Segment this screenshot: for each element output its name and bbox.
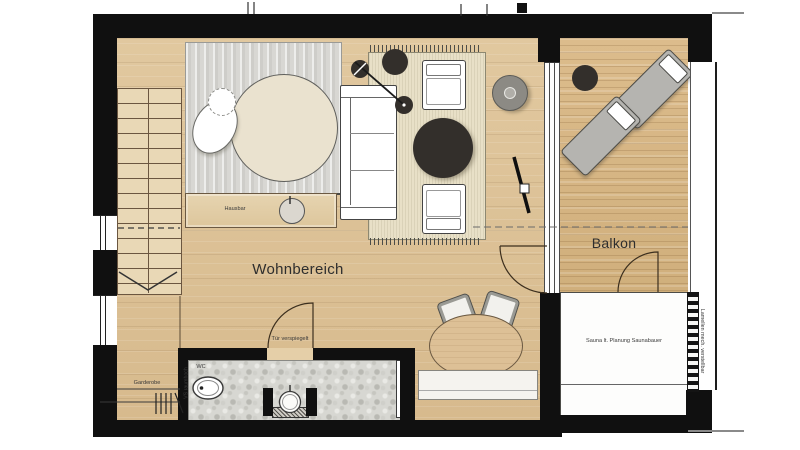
- sofa-armrest-bottom: [341, 207, 396, 219]
- wall-top: [93, 14, 712, 38]
- window-left-upper: [93, 215, 117, 252]
- wall-pier-balcony-top: [538, 36, 560, 62]
- side-table-dark: [382, 49, 408, 75]
- wall-bottom-sauna: [560, 415, 688, 433]
- sofa-cushion-line-1: [350, 133, 394, 134]
- sofa-backrest: [341, 97, 351, 205]
- vanity-pier-left: [263, 388, 273, 416]
- sideboard-line: [419, 390, 537, 391]
- top-wall-marker: [517, 3, 527, 13]
- label-mirrored-door: Tür verspiegelt: [271, 335, 309, 341]
- label-garderobe: Garderobe: [125, 379, 168, 385]
- armchair-top-back-cushion: [426, 64, 461, 76]
- floor-lamp-shade: [395, 96, 413, 114]
- room-label-balcony: Balkon: [574, 235, 654, 251]
- pouf-center: [504, 87, 516, 99]
- window-left-upper-glazing: [100, 216, 106, 251]
- round-daybed: [230, 74, 338, 182]
- label-vs-raumhoch: VS raumhoch: [183, 367, 189, 399]
- wall-corner-bottom-right: [686, 390, 712, 433]
- window-left-lower-glazing: [100, 296, 106, 346]
- rug-fringe-bottom: [370, 238, 482, 245]
- staircase: [117, 88, 182, 295]
- wall-corner-top-right: [688, 14, 712, 62]
- armchair-bottom: [422, 184, 466, 234]
- armchair-top-seat: [426, 78, 461, 105]
- label-wc: WC: [193, 363, 209, 369]
- ottoman: [208, 88, 236, 116]
- label-hausbar: Hausbar: [207, 205, 263, 211]
- vanity-pier-right: [306, 388, 317, 416]
- floor-plan: Sauna lt. Planung Saunabauer Wohnbereich…: [0, 0, 800, 450]
- label-louvers: Lamellen mech. verstellbar: [700, 307, 706, 375]
- armchair-top: [422, 60, 466, 110]
- armchair-bottom-seat: [426, 190, 461, 217]
- louver-strip: [687, 292, 699, 392]
- wall-pier-sauna-left: [540, 292, 560, 433]
- wall-left-upper: [93, 14, 117, 215]
- room-label-living: Wohnbereich: [238, 261, 358, 278]
- vanity-counter: [272, 407, 309, 418]
- sideboard-bench: [418, 370, 538, 400]
- window-left-lower: [93, 295, 117, 347]
- wall-bottom: [93, 420, 562, 437]
- coffee-table: [413, 118, 473, 178]
- sofa-cushion-line-2: [350, 170, 394, 171]
- dining-table: [429, 314, 523, 378]
- bath-wall-right: [400, 348, 415, 420]
- balcony-plant-pot: [572, 65, 598, 91]
- sauna-label: Sauna lt. Planung Saunabauer: [585, 337, 663, 343]
- sauna-bench-line: [561, 384, 687, 385]
- floor-lamp-base: [351, 60, 369, 78]
- armchair-bottom-back-cushion: [426, 218, 461, 230]
- sofa: [340, 85, 397, 220]
- pouf: [492, 75, 528, 111]
- sliding-glass-wall: [544, 62, 560, 293]
- hausbar-sink: [279, 198, 305, 224]
- sauna: Sauna lt. Planung Saunabauer: [560, 292, 688, 416]
- bath-wall-top-left: [178, 348, 267, 360]
- bath-door-threshold: [267, 348, 313, 360]
- wall-left-mid: [93, 250, 117, 295]
